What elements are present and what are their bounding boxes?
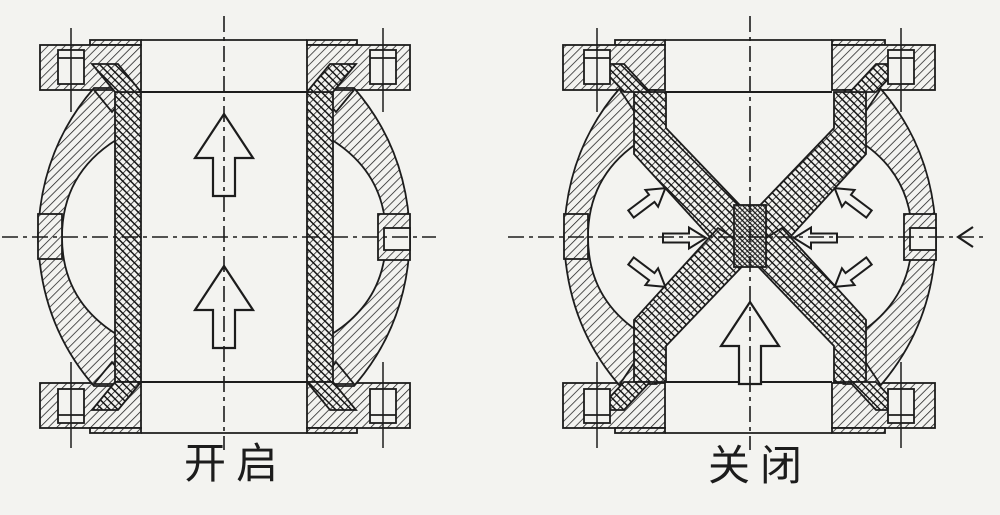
closed-valve-view xyxy=(508,16,985,450)
open-valve-view xyxy=(2,16,436,450)
diagram-canvas: 开启 关闭 xyxy=(0,0,1000,515)
flange-lip xyxy=(90,428,141,433)
flow-up-arrow-icon xyxy=(195,114,253,196)
air-port-bore xyxy=(910,228,936,250)
state-label-closed: 关闭 xyxy=(708,442,812,489)
flange-lip xyxy=(832,428,885,433)
blocked-flow-up-arrow-icon xyxy=(721,302,779,384)
flange-lip xyxy=(615,428,665,433)
pinch-pressure-arrow-icon xyxy=(794,228,837,249)
pinch-valve-diagram: 开启 关闭 xyxy=(0,0,1000,515)
air-port-bore xyxy=(384,228,410,250)
flange-lip xyxy=(307,428,357,433)
state-label-open: 开启 xyxy=(184,440,288,487)
pinch-pressure-arrow-icon xyxy=(663,228,706,249)
